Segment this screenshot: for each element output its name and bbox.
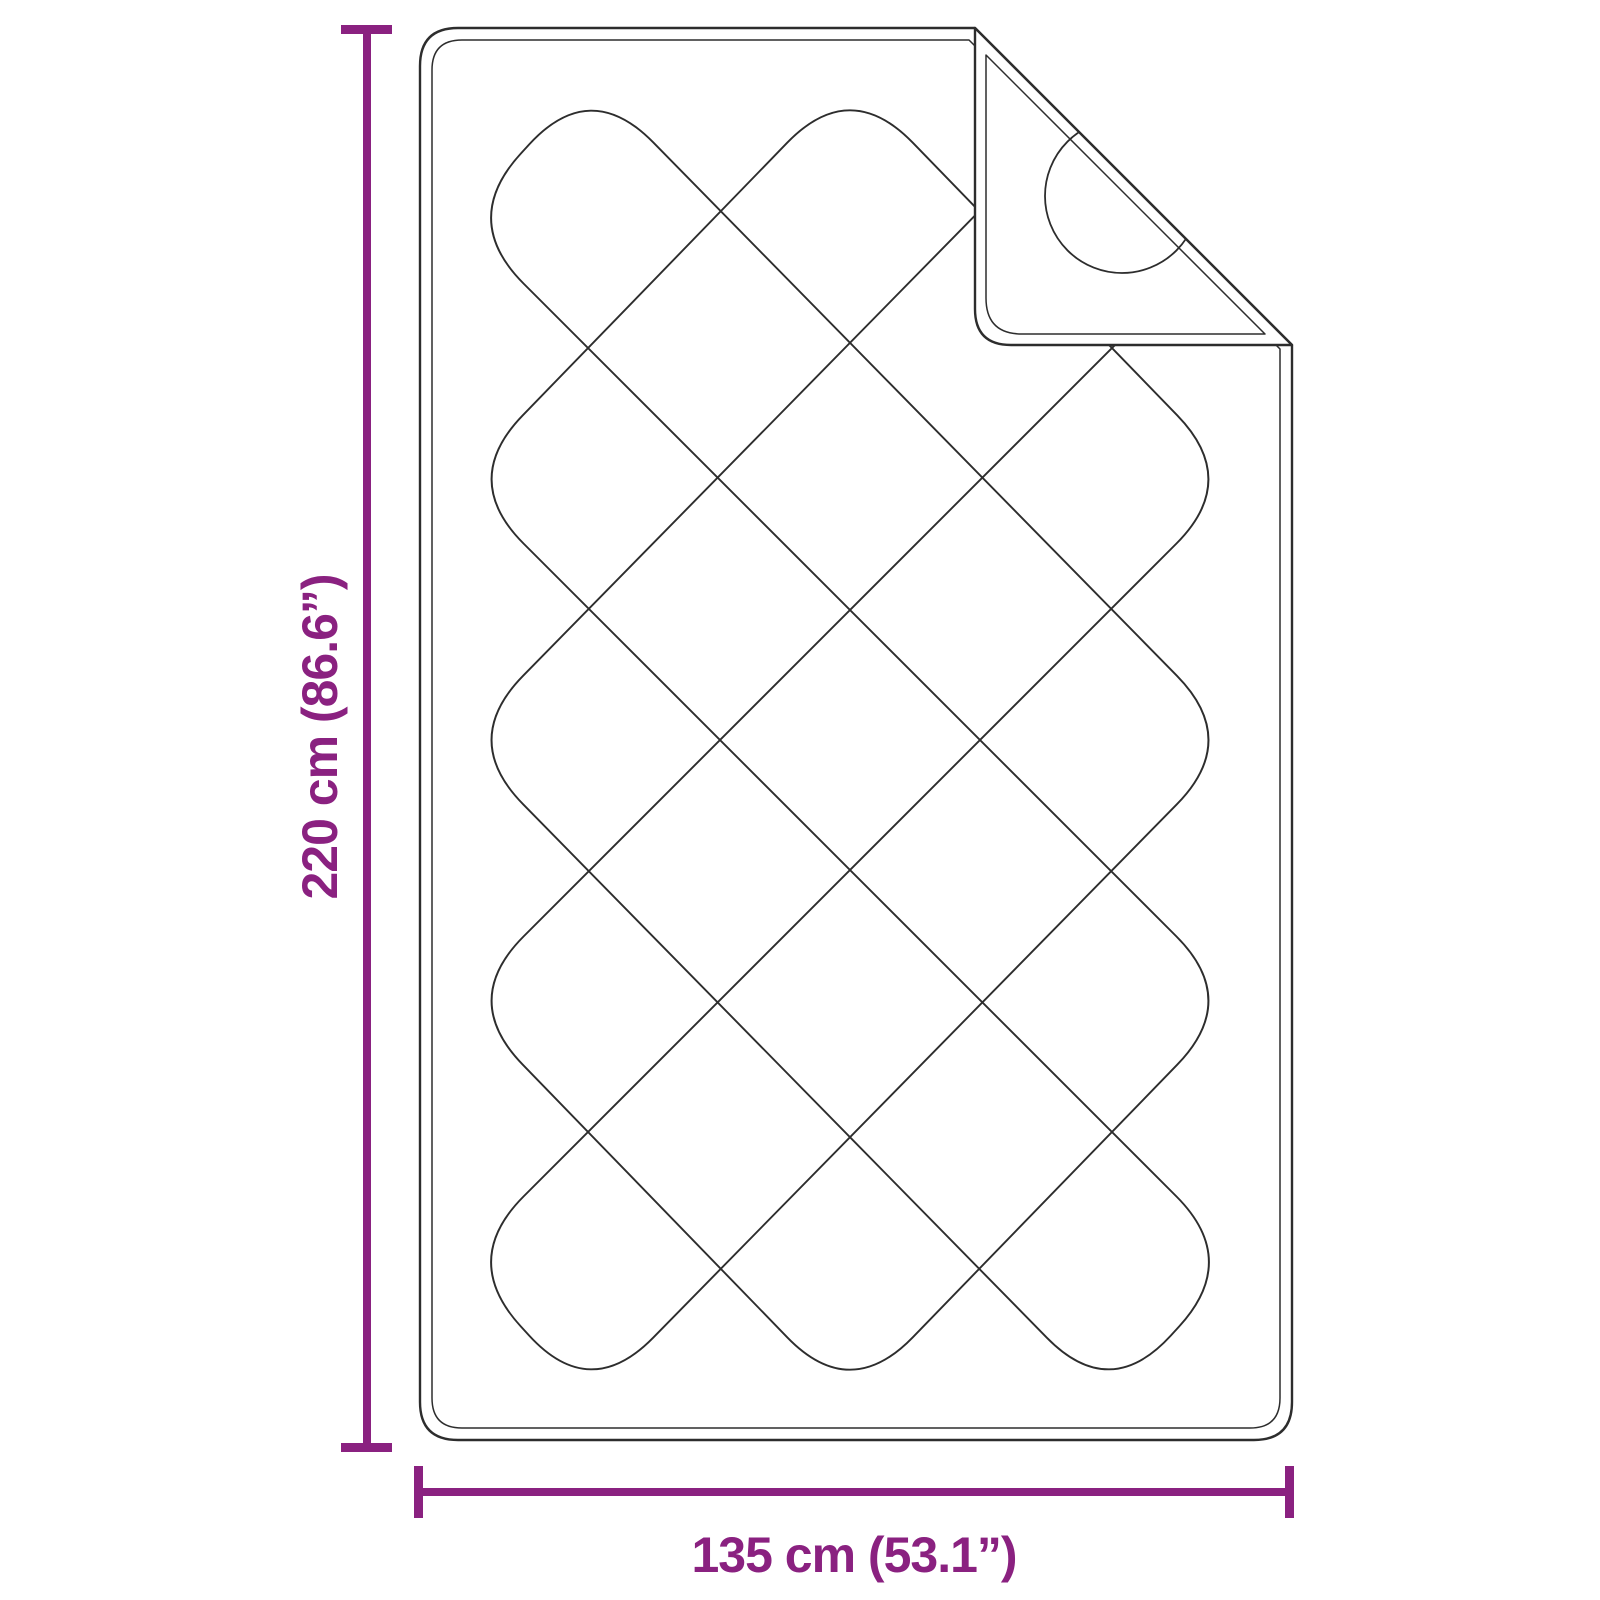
width-dimension-line <box>418 1488 1290 1496</box>
folded-corner <box>975 28 1292 345</box>
width-dimension-cap-right <box>1285 1466 1294 1518</box>
height-dimension-label: 220 cm (86.6”) <box>292 574 348 899</box>
height-dimension-cap-top <box>341 25 392 34</box>
height-dimension: 220 cm (86.6”) <box>292 25 392 1452</box>
dimension-diagram: 220 cm (86.6”) 135 cm (53.1”) <box>0 0 1600 1600</box>
width-dimension-cap-left <box>414 1466 423 1518</box>
width-dimension-label: 135 cm (53.1”) <box>691 1527 1016 1583</box>
blanket-dimension-illustration: 220 cm (86.6”) 135 cm (53.1”) <box>0 0 1600 1600</box>
width-dimension: 135 cm (53.1”) <box>414 1466 1294 1583</box>
height-dimension-cap-bottom <box>341 1443 392 1452</box>
height-dimension-line <box>363 29 371 1448</box>
